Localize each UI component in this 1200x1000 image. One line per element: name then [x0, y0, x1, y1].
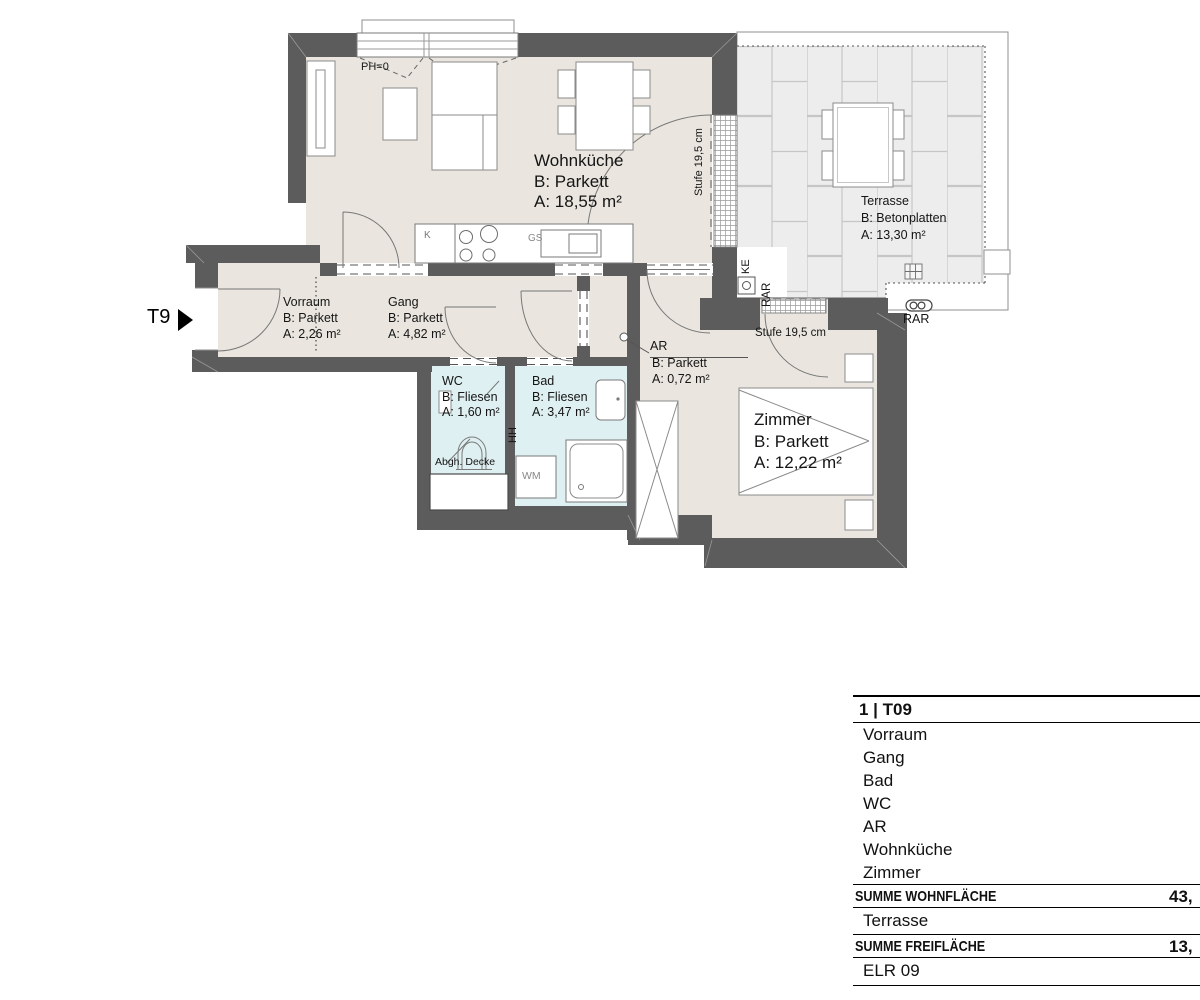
terrace-chair [822, 151, 833, 180]
entrance-arrow-icon [178, 309, 193, 331]
table-row: WC [853, 792, 1200, 815]
dining-table [576, 62, 633, 150]
sum-outdoor-label: SUMME FREIFLÄCHE [855, 938, 985, 955]
table-row: Vorraum [853, 723, 1200, 746]
table-header: 1 | T09 [853, 697, 1200, 723]
room-label-ar: AR B: Parkett A: 0,72 m² [650, 338, 710, 388]
entrance-label: T9 [147, 306, 170, 329]
ke-label: KE [740, 250, 752, 274]
coffee-table [383, 88, 417, 140]
floorplan-graphic [0, 0, 1200, 650]
terrace-drain-icon [905, 264, 922, 279]
room-label-gang: Gang B: Parkett A: 4,82 m² [388, 294, 446, 342]
table-row-terrasse: Terrasse [853, 908, 1200, 935]
rar-label-vertical: RAR [761, 263, 773, 307]
room-label-bad: Bad B: Fliesen A: 3,47 m² [532, 374, 590, 421]
floorplan-page: T9 Wohnküche B: Parkett A: 18,55 m² Terr… [0, 0, 1200, 1000]
terrace-chair [822, 110, 833, 139]
area-summary-table: 1 | T09 Vorraum Gang Bad WC AR Wohnküche… [853, 695, 1200, 986]
ph-label: PH=0 [361, 61, 389, 73]
terrace [737, 32, 1010, 310]
nightstand [845, 500, 873, 530]
dining-chair [633, 106, 650, 134]
table-row: Zimmer [853, 861, 1200, 884]
terrace-table [833, 103, 893, 187]
shelf-unit [307, 61, 335, 156]
dining-chair [558, 106, 575, 134]
kitchen-gs-label: GS [528, 233, 542, 245]
room-label-terrasse: Terrasse B: Betonplatten A: 13,30 m² [861, 193, 946, 244]
abgh-decke-label: Abgh. Decke [435, 456, 495, 468]
room-label-wc: WC B: Fliesen A: 1,60 m² [442, 374, 500, 421]
nightstand [845, 354, 873, 382]
table-row: Gang [853, 746, 1200, 769]
room-label-zimmer: Zimmer B: Parkett A: 12,22 m² [754, 409, 842, 474]
sum-living-row: SUMME WOHNFLÄCHE 43, [853, 885, 1200, 908]
ke-icon [738, 277, 755, 294]
sum-living-label: SUMME WOHNFLÄCHE [855, 888, 996, 905]
kitchen-k-label: K [424, 230, 431, 242]
terrace-niche [984, 250, 1010, 274]
table-footer: ELR 09 [853, 958, 1200, 986]
hh-label: HH [507, 419, 519, 443]
table-row: AR [853, 815, 1200, 838]
dining-chair [633, 70, 650, 98]
stufe-label-terrace: Stufe 19,5 cm [693, 112, 705, 196]
terrace-door-sill [714, 115, 737, 247]
terrace-chair [893, 151, 904, 180]
table-row: Bad [853, 769, 1200, 792]
window [357, 33, 518, 57]
window-sill [362, 20, 514, 33]
room-label-wohnkueche: Wohnküche B: Parkett A: 18,55 m² [534, 151, 623, 213]
ar-leader-dot [620, 333, 628, 341]
table-room-list: Vorraum Gang Bad WC AR Wohnküche Zimmer [853, 723, 1200, 885]
sofa [432, 62, 497, 170]
room-label-vorraum: Vorraum B: Parkett A: 2,26 m² [283, 294, 341, 342]
sum-outdoor-value: 13, [1169, 937, 1193, 957]
terrace-chair [893, 110, 904, 139]
entrance-opening [195, 288, 218, 350]
rar-label-horizontal: RAR [903, 311, 929, 327]
sum-living-value: 43, [1169, 887, 1193, 907]
wm-label: WM [522, 470, 541, 482]
bathroom-sink [596, 380, 625, 420]
shower [566, 440, 627, 502]
sum-outdoor-row: SUMME FREIFLÄCHE 13, [853, 935, 1200, 958]
stufe-label-zimmer: Stufe 19,5 cm [755, 327, 826, 339]
dining-chair [558, 70, 575, 98]
table-row: Wohnküche [853, 838, 1200, 861]
shaft [430, 474, 508, 510]
terrace-table-set [822, 103, 904, 187]
